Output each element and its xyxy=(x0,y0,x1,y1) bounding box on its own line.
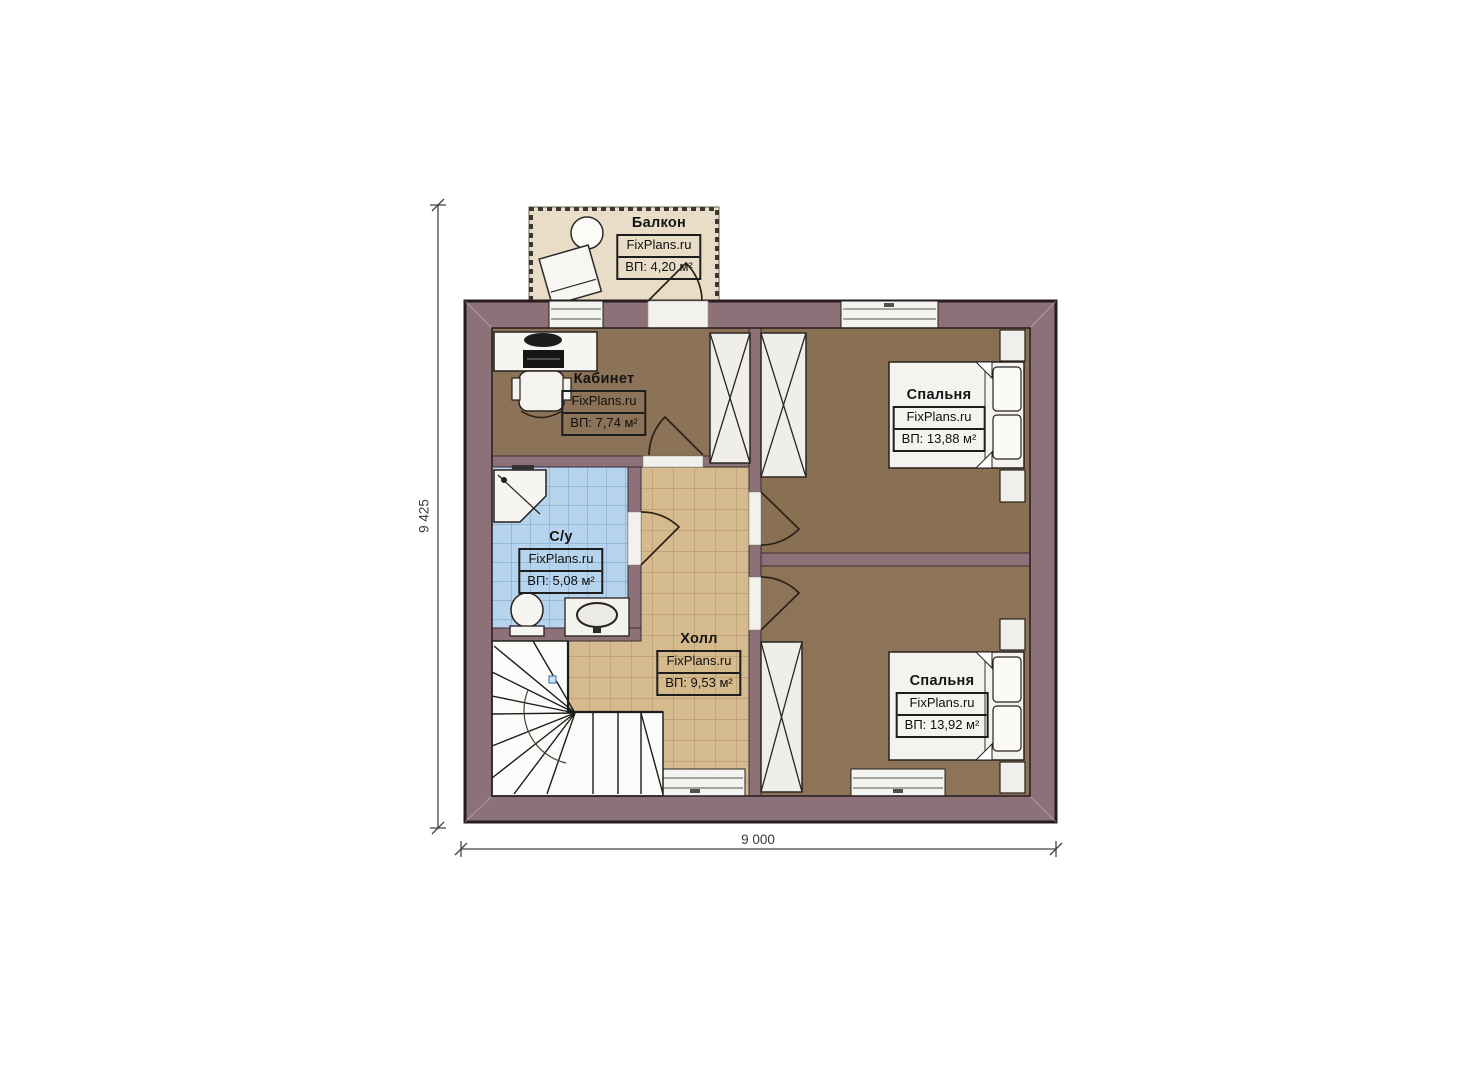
brand-text: FixPlans.ru xyxy=(895,408,984,428)
height-dimension-label: 9 425 xyxy=(417,499,432,533)
room-label-bedroom-bottom: Спальня FixPlans.ru ВП: 13,92 м² xyxy=(896,674,989,738)
room-area: ВП: 9,53 м² xyxy=(658,672,739,694)
wardrobe-bedroom-top-icon xyxy=(761,333,806,477)
balcony-door-opening xyxy=(648,301,708,328)
room-title: Холл xyxy=(680,632,718,648)
balcony-table-icon xyxy=(571,217,603,249)
room-area: ВП: 4,20 м² xyxy=(618,256,699,278)
room-label-office: Кабинет FixPlans.ru ВП: 7,74 м² xyxy=(561,372,646,436)
nightstand-icon xyxy=(1000,330,1025,361)
brand-text: FixPlans.ru xyxy=(520,550,601,570)
wardrobe-office-icon xyxy=(710,333,750,463)
room-label-bathroom: С/у FixPlans.ru ВП: 5,08 м² xyxy=(518,530,603,594)
bedroom-bottom-door-opening xyxy=(749,577,761,630)
width-dimension-label: 9 000 xyxy=(741,832,775,847)
pillow-icon xyxy=(993,657,1021,702)
room-info-box: FixPlans.ru ВП: 5,08 м² xyxy=(518,548,603,594)
room-label-hall: Холл FixPlans.ru ВП: 9,53 м² xyxy=(656,632,741,696)
room-area: ВП: 13,92 м² xyxy=(898,714,987,736)
office-window xyxy=(549,301,603,328)
bedroom-top-door-opening xyxy=(749,492,761,545)
brand-text: FixPlans.ru xyxy=(563,392,644,412)
room-info-box: FixPlans.ru ВП: 4,20 м² xyxy=(616,234,701,280)
pillow-icon xyxy=(993,367,1021,411)
sink-icon xyxy=(565,598,629,636)
room-title: Спальня xyxy=(907,388,972,404)
room-label-balcony: Балкон FixPlans.ru ВП: 4,20 м² xyxy=(616,216,701,280)
bathroom-door-opening xyxy=(628,512,641,565)
floor-plan-page: Балкон FixPlans.ru ВП: 4,20 м² Кабинет F… xyxy=(0,0,1473,1080)
toilet-icon xyxy=(510,593,544,636)
room-label-bedroom-top: Спальня FixPlans.ru ВП: 13,88 м² xyxy=(893,388,986,452)
room-area: ВП: 7,74 м² xyxy=(563,412,644,434)
bedroom-bottom-window xyxy=(851,769,945,796)
nightstand-icon xyxy=(1000,470,1025,502)
room-title: Спальня xyxy=(910,674,975,690)
nightstand-icon xyxy=(1000,762,1025,793)
office-door-opening xyxy=(643,456,703,467)
pillow-icon xyxy=(993,415,1021,459)
room-info-box: FixPlans.ru ВП: 13,88 м² xyxy=(893,406,986,452)
floor-plan-canvas xyxy=(0,0,1473,1080)
room-info-box: FixPlans.ru ВП: 13,92 м² xyxy=(896,692,989,738)
pillow-icon xyxy=(993,706,1021,751)
brand-text: FixPlans.ru xyxy=(618,236,699,256)
brand-text: FixPlans.ru xyxy=(658,652,739,672)
room-info-box: FixPlans.ru ВП: 7,74 м² xyxy=(561,390,646,436)
stair-node-handle xyxy=(549,676,556,683)
room-title: Балкон xyxy=(632,216,686,232)
bedroom-top-window xyxy=(841,301,938,328)
room-info-box: FixPlans.ru ВП: 9,53 м² xyxy=(656,650,741,696)
brand-text: FixPlans.ru xyxy=(898,694,987,714)
wardrobe-bedroom-bottom-icon xyxy=(761,642,802,792)
room-area: ВП: 13,88 м² xyxy=(895,428,984,450)
room-title: С/у xyxy=(549,530,572,546)
room-area: ВП: 5,08 м² xyxy=(520,570,601,592)
chair-headrest-icon xyxy=(524,333,562,347)
room-title: Кабинет xyxy=(574,372,635,388)
nightstand-icon xyxy=(1000,619,1025,650)
